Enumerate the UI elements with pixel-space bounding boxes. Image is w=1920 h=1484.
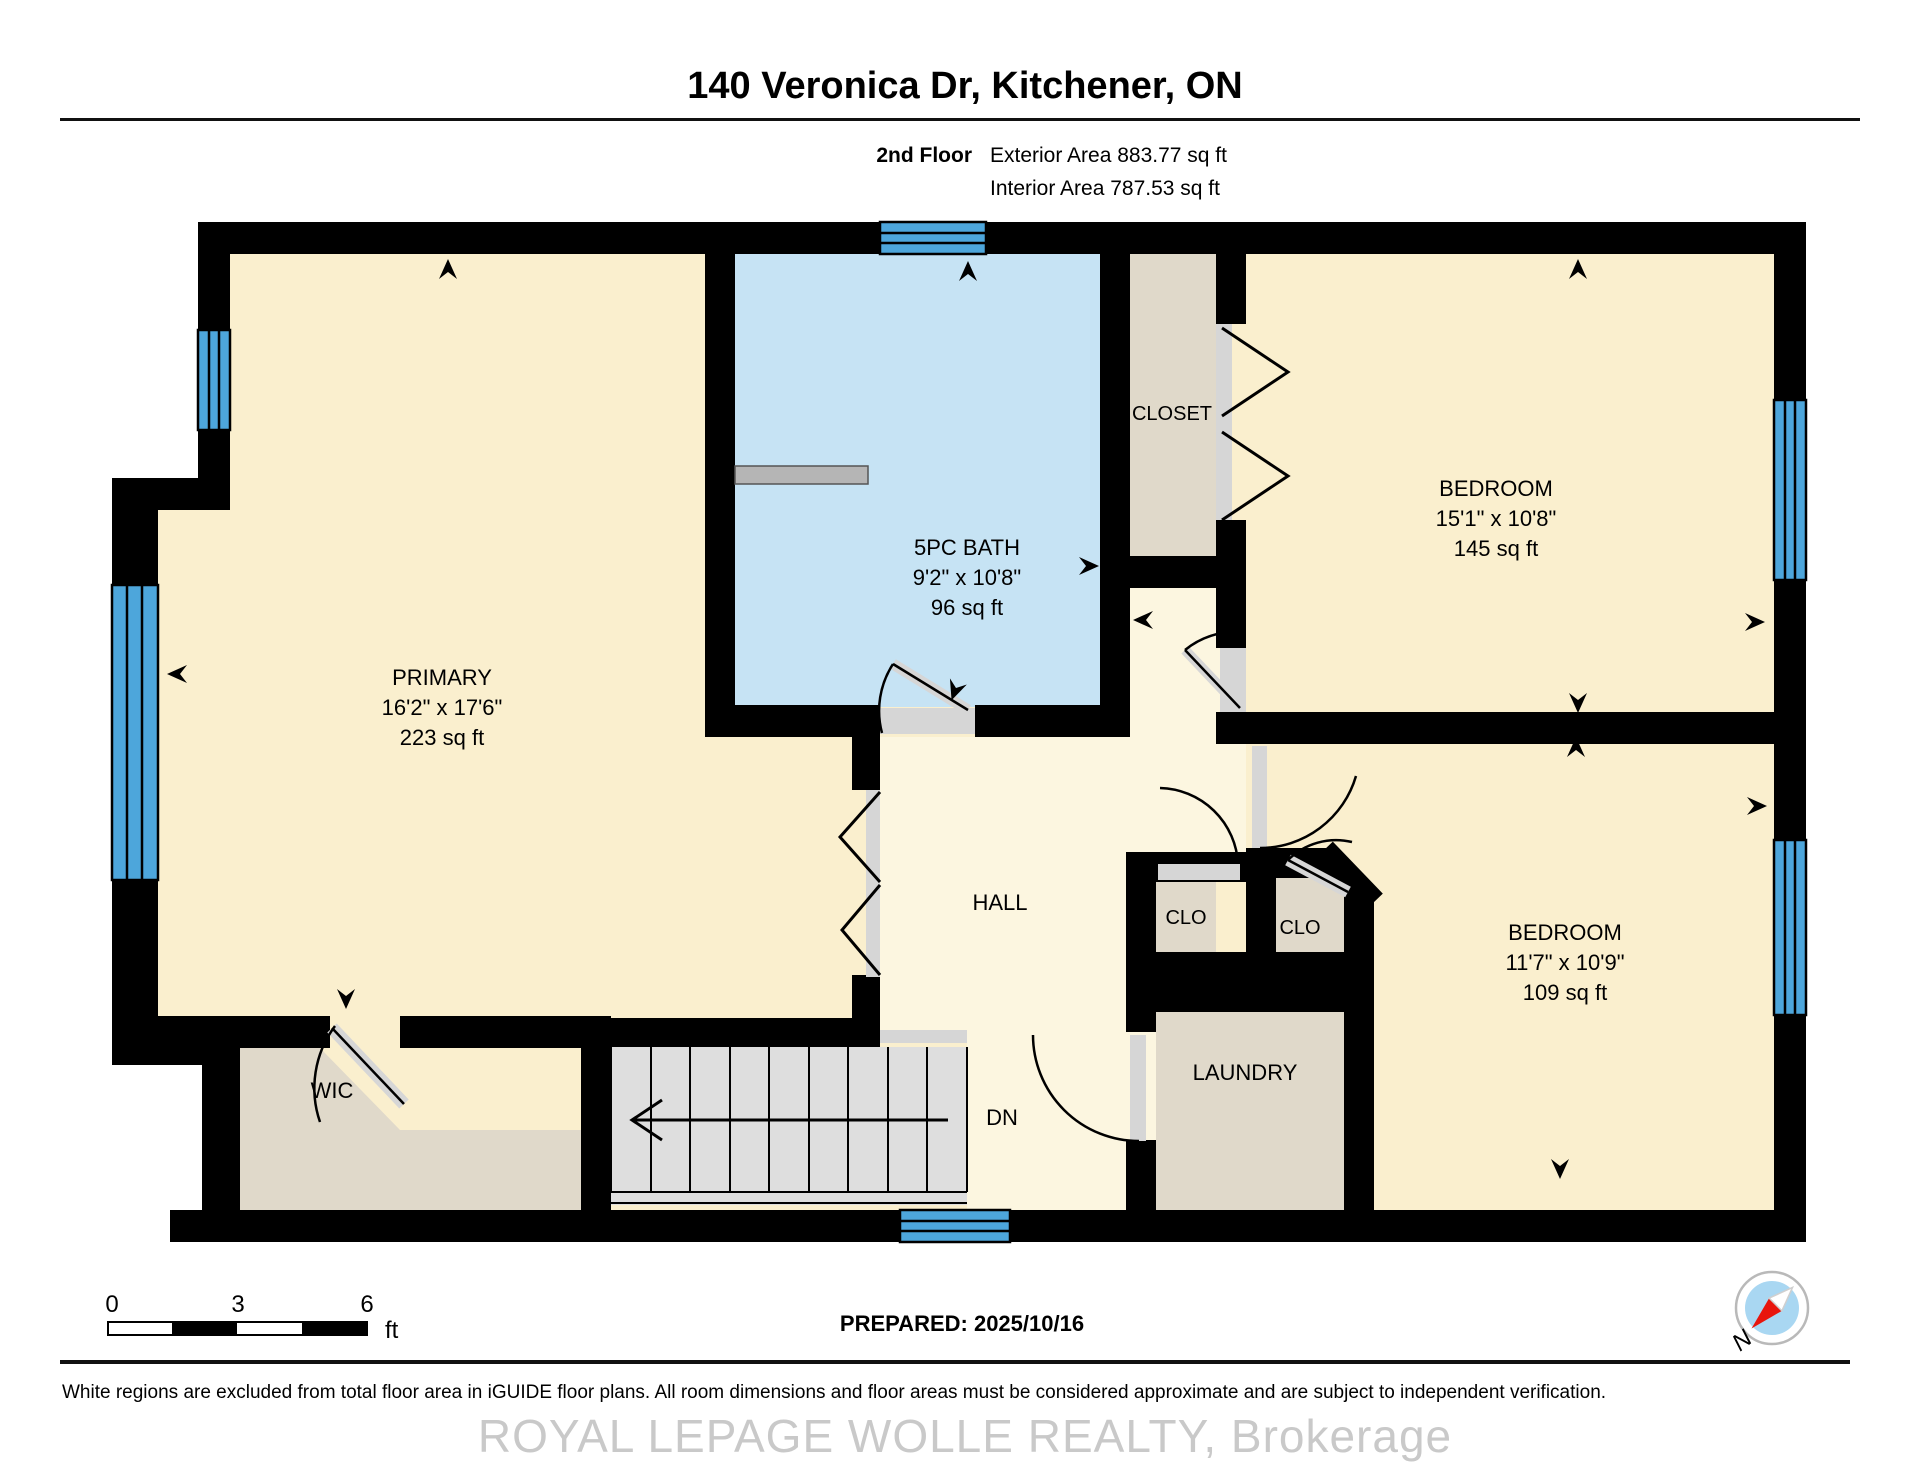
- floor-label: 2nd Floor: [876, 144, 972, 167]
- svg-text:BEDROOM: BEDROOM: [1508, 920, 1622, 945]
- scale-tick-3: 3: [231, 1291, 244, 1318]
- label-clo2: CLO: [1279, 917, 1320, 939]
- footer: PREPARED: 2025/10/16 N White regions are…: [60, 1272, 1850, 1462]
- label-laundry: LAUNDRY: [1193, 1060, 1298, 1085]
- scale-bar-seg1: [172, 1322, 237, 1335]
- wall-closet-right-top: [1216, 254, 1246, 324]
- window-primary-lower-left: [112, 585, 158, 880]
- wall-laundry-top: [1126, 952, 1374, 1012]
- scale-bar: 0 3 6 ft: [105, 1291, 398, 1344]
- label-hall: HALL: [972, 890, 1027, 915]
- label-wic: WIC: [311, 1078, 354, 1103]
- header: 140 Veronica Dr, Kitchener, ON 2nd Floor…: [60, 65, 1860, 200]
- svg-text:96 sq ft: 96 sq ft: [931, 595, 1003, 620]
- header-divider: [60, 118, 1860, 121]
- interior-area-label: Interior Area 787.53 sq ft: [990, 177, 1220, 200]
- window-bedroom1-right: [1774, 400, 1806, 580]
- svg-text:223 sq ft: 223 sq ft: [400, 725, 484, 750]
- svg-text:PRIMARY: PRIMARY: [392, 665, 492, 690]
- wall-stairs-top: [611, 1018, 880, 1047]
- compass-icon: N: [1727, 1272, 1808, 1357]
- wall-wic-top-left: [158, 1016, 330, 1048]
- wall-closet-right-bottom: [1216, 520, 1246, 588]
- wall-primary-bath: [705, 254, 735, 737]
- exterior-area-label: Exterior Area 883.77 sq ft: [990, 144, 1227, 167]
- footer-divider: [60, 1360, 1850, 1364]
- scale-unit: ft: [385, 1317, 399, 1344]
- wall-bifold-stub-top: [852, 737, 880, 790]
- wall-wic-top-right: [400, 1016, 611, 1048]
- svg-text:109 sq ft: 109 sq ft: [1523, 980, 1607, 1005]
- prepared-date: PREPARED: 2025/10/16: [840, 1311, 1084, 1336]
- stair-top-edge: [880, 1030, 967, 1043]
- svg-text:BEDROOM: BEDROOM: [1439, 476, 1553, 501]
- page-title: 140 Veronica Dr, Kitchener, ON: [687, 65, 1242, 107]
- wall-bath-right: [1100, 254, 1130, 737]
- window-bath-top: [880, 222, 986, 254]
- wall-bath-bottom-left: [705, 705, 880, 737]
- wall-wic-left: [202, 1032, 240, 1242]
- disclaimer-text: White regions are excluded from total fl…: [62, 1382, 1606, 1403]
- svg-text:9'2" x 10'8": 9'2" x 10'8": [913, 565, 1021, 590]
- wall-outer-top: [198, 222, 1806, 254]
- window-bedroom2-right: [1774, 840, 1806, 1015]
- floorplan-page: 140 Veronica Dr, Kitchener, ON 2nd Floor…: [0, 0, 1920, 1484]
- room-laundry-floor: [1156, 1012, 1344, 1210]
- scale-tick-0: 0: [105, 1291, 118, 1318]
- wall-bedroom-divider: [1216, 712, 1774, 744]
- label-dn: DN: [986, 1105, 1018, 1130]
- label-closet: CLOSET: [1132, 403, 1212, 425]
- scale-bar-seg2: [302, 1322, 367, 1335]
- scale-tick-6: 6: [360, 1291, 373, 1318]
- floorplan-canvas: 140 Veronica Dr, Kitchener, ON 2nd Floor…: [0, 0, 1920, 1484]
- bath-shelf: [735, 466, 868, 484]
- svg-text:16'2" x 17'6": 16'2" x 17'6": [382, 695, 503, 720]
- svg-text:145 sq ft: 145 sq ft: [1454, 536, 1538, 561]
- label-bedroom2: BEDROOM 11'7" x 10'9" 109 sq ft: [1505, 920, 1624, 1005]
- wall-outer-right: [1774, 222, 1806, 1242]
- label-clo1: CLO: [1165, 907, 1206, 929]
- svg-text:15'1" x 10'8": 15'1" x 10'8": [1436, 506, 1557, 531]
- stairs-floor: [611, 1047, 967, 1205]
- window-primary-upper-left: [198, 330, 230, 430]
- window-bottom: [900, 1210, 1010, 1242]
- svg-text:5PC BATH: 5PC BATH: [914, 535, 1020, 560]
- wall-bifold-stub-bottom: [852, 975, 880, 1018]
- brokerage-watermark: ROYAL LEPAGE WOLLE REALTY, Brokerage: [478, 1410, 1452, 1462]
- wall-stairs-left: [581, 1016, 611, 1210]
- svg-text:11'7" x 10'9": 11'7" x 10'9": [1505, 950, 1624, 975]
- wall-laundry-right: [1344, 1012, 1374, 1210]
- wall-bedroom1-left: [1216, 588, 1246, 648]
